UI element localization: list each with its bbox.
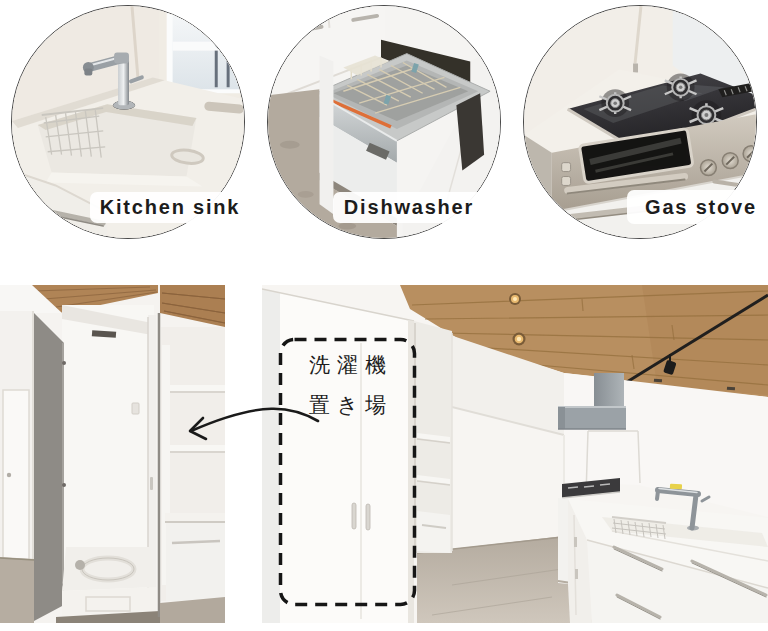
outlet [132, 403, 139, 414]
base-cabinet [166, 523, 225, 601]
feature-label-chip-dishwasher: Dishwasher [333, 192, 485, 223]
tall-cabinet [262, 289, 414, 623]
cabinet-side-panel [320, 56, 334, 215]
door-handle [7, 473, 11, 477]
hallway-left [0, 311, 34, 623]
shelf [170, 445, 225, 451]
kitchen-room-photo [262, 285, 768, 623]
faucet-tag [670, 484, 682, 490]
nook-base-cabinet [417, 511, 450, 553]
hallway-floor [0, 557, 34, 623]
door-pull [150, 477, 153, 490]
feature-label-chip-kitchen-sink: Kitchen sink [90, 192, 250, 223]
laundry-closet-scene [0, 285, 225, 623]
pantry-shelving [159, 313, 225, 623]
cabinet-side-shade [524, 135, 552, 238]
annotation-line-2: 置き場 [278, 390, 417, 419]
shelf [170, 385, 225, 391]
drawer-handle [528, 228, 582, 234]
washing-machine-pan [62, 547, 156, 623]
drain-fitting [75, 560, 85, 570]
washing-machine-annotation-text: 洗濯機 置き場 [278, 350, 417, 419]
feature-label: Gas stove [645, 196, 757, 219]
annotation-line-1: 洗濯機 [278, 350, 417, 379]
cabinet-handle [352, 503, 356, 529]
shelf-nook [414, 321, 452, 553]
feature-label-chip-gas-stove: Gas stove [627, 190, 768, 224]
kitchen-room-scene [262, 285, 768, 623]
feature-label: Dishwasher [344, 196, 474, 219]
counter-slab [165, 513, 225, 521]
cabinet-handle [366, 504, 370, 530]
photo-collage: Kitchen sink Dishwasher Gas stove [0, 0, 768, 631]
closet-photo [0, 285, 225, 623]
feature-label: Kitchen sink [100, 196, 241, 219]
open-closet-door [34, 313, 64, 621]
